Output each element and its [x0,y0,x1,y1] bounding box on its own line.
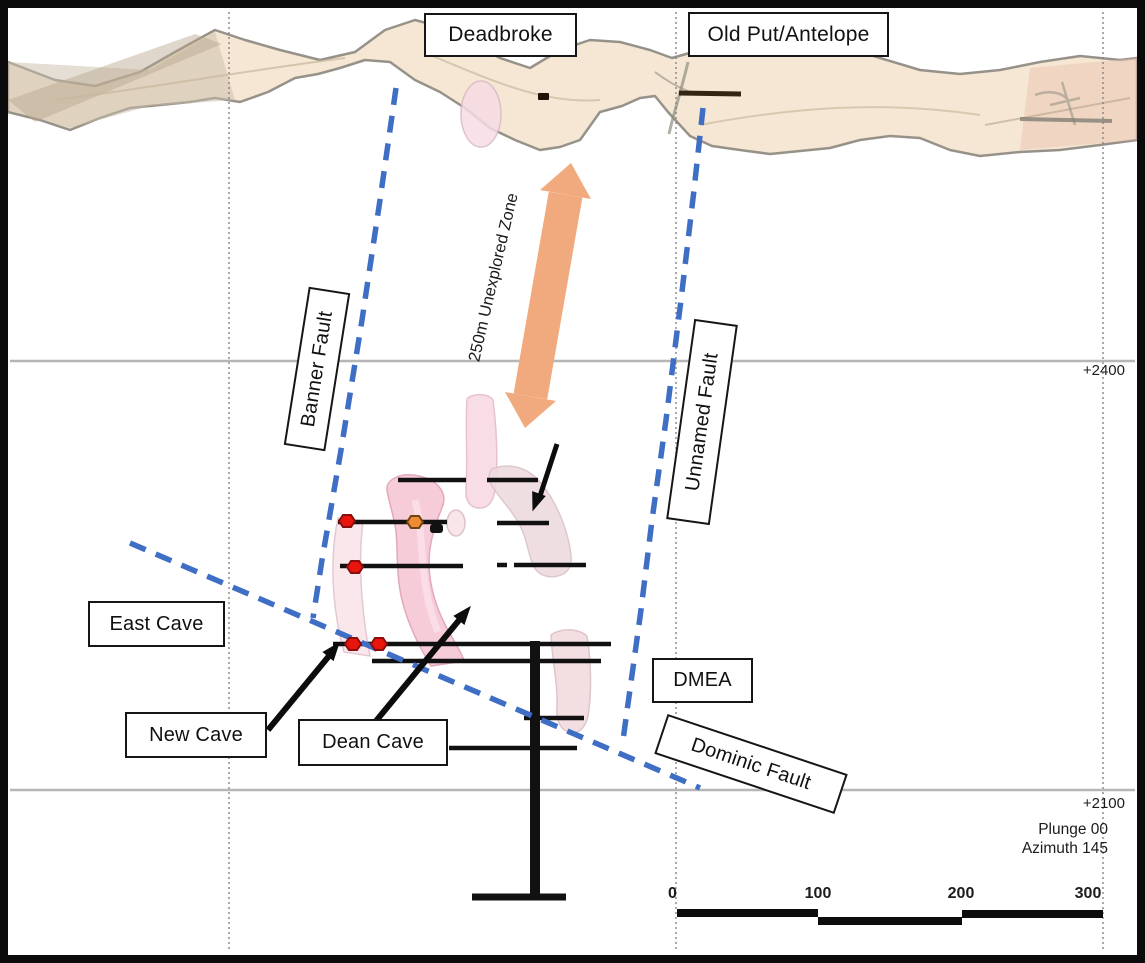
dean-cave-label-text: Dean Cave [322,731,424,754]
dmea-label-text: DMEA [673,669,732,692]
east-cave-label: East Cave [88,601,225,647]
scale-bar [677,909,1103,925]
cross-section-figure: Deadbroke Old Put/Antelope Banner Fault … [0,0,1145,963]
banner-fault-label-text: Banner Fault [296,309,337,428]
old-put-antelope-label-text: Old Put/Antelope [708,23,870,47]
surface-dash-mark [538,93,549,100]
scale-tick-200: 200 [933,885,989,903]
scale-tick-300: 300 [1060,885,1116,903]
shaft [472,641,566,897]
elevation-label-2400: +2400 [1055,362,1125,379]
east-cave-label-text: East Cave [109,613,203,636]
old-workings-mark [1020,119,1112,121]
elev-2400-text: +2400 [1083,362,1125,379]
plunge-text: Plunge 00 [948,820,1108,839]
dmea-label: DMEA [652,658,753,703]
ore-blob-small [447,510,465,536]
scale-tick-0: 0 [668,885,698,903]
unnamed-fault-label-text: Unnamed Fault [681,351,723,492]
drill-dot [430,524,443,533]
scale-tick-100: 100 [790,885,846,903]
terrain-pink-patch [1020,58,1137,150]
adit-mark [679,93,741,94]
scale-tick-0-text: 0 [668,885,677,902]
ore-blob-surface [461,81,501,147]
scale-tick-300-text: 300 [1075,885,1102,902]
elev-2100-text: +2100 [1083,795,1125,812]
fault-lines [130,88,703,788]
orange-hexagon-marker [407,516,423,528]
ore-tube-upper-vertical [466,395,497,508]
red-hexagon-marker [339,515,355,527]
view-orientation-info: Plunge 00 Azimuth 145 [948,820,1108,859]
section-drawing [0,0,1145,963]
deadbroke-label-text: Deadbroke [448,23,553,47]
red-hexagon-marker [347,561,363,573]
red-hexagon-marker [371,638,387,650]
red-hexagon-marker [345,638,361,650]
scale-tick-100-text: 100 [805,885,832,902]
elevation-label-2100: +2100 [1055,795,1125,812]
old-put-antelope-label: Old Put/Antelope [688,12,889,57]
new-cave-label: New Cave [125,712,267,758]
scale-tick-200-text: 200 [948,885,975,902]
dean-cave-label: Dean Cave [298,719,448,766]
new-cave-label-text: New Cave [149,724,243,747]
deadbroke-label: Deadbroke [424,13,577,57]
azimuth-text: Azimuth 145 [948,839,1108,858]
